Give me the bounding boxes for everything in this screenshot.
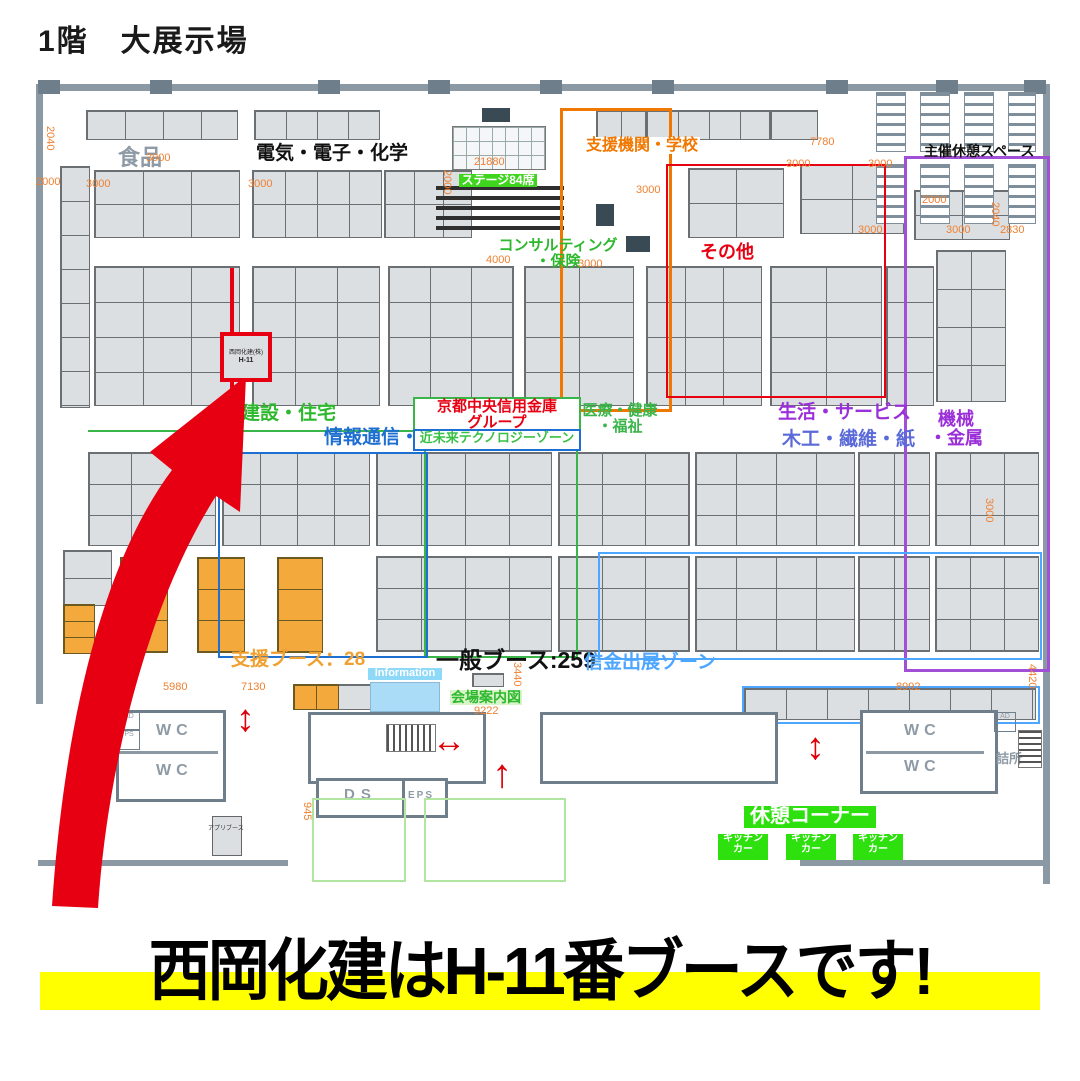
entrance-arrow-icon: ↕ [806, 728, 825, 766]
green-area-outline [312, 798, 406, 882]
zone-label-electric: 電気・電子・化学 [256, 144, 408, 165]
zone-label-rest-space: 主催休憩スペース [924, 144, 1034, 159]
zone-label-chuo-shinkin-group: 京都中央信用金庫 グループ [413, 397, 581, 431]
zone-label-construction: 建設・住宅 [241, 404, 336, 425]
dimension: 3000 [858, 224, 882, 236]
wall-bottom-right [800, 860, 1048, 866]
dimension: 3000 [636, 184, 660, 196]
booth-block [695, 452, 855, 546]
zone-label-future-tech: 近未来テクノロジーゾーン [413, 429, 581, 451]
booth-block [472, 673, 504, 687]
zone-label-machine: 機械 ・金属 [926, 410, 986, 449]
dimension: 2000 [922, 194, 946, 206]
dimension: 3000 [248, 178, 272, 190]
stage-equipment [482, 108, 510, 122]
dimension: 7780 [810, 136, 834, 148]
dimension: 945 [301, 802, 313, 820]
ad-room: AD [994, 712, 1016, 732]
zone-label-support-org: 支援機関・学校 [584, 137, 700, 154]
exhibition-floor-map: 1階 大展示場 [0, 0, 1080, 1081]
dimension: 9222 [474, 705, 498, 717]
kitchen-car-label: キッチン カー [853, 834, 903, 860]
ad-room: AD [118, 712, 140, 730]
zone-outline-others [666, 164, 886, 398]
dimension: 2040 [44, 126, 56, 150]
entrance-arrow-icon: ↔ [432, 724, 466, 758]
zone-label-medical: 医療・健康 ・福祉 [580, 403, 660, 435]
wc-divider-right [866, 751, 984, 754]
booth-block [94, 266, 240, 406]
wc-label: WC [156, 722, 193, 740]
booth-block [254, 110, 380, 140]
booth-block [63, 550, 112, 606]
dimension: 5980 [163, 681, 187, 693]
pillar [318, 80, 340, 94]
wc-divider-left [118, 751, 218, 754]
dimension: 3000 [946, 224, 970, 236]
green-area-outline [424, 798, 566, 882]
pillar [652, 80, 674, 94]
dimension: 3000 [578, 258, 602, 270]
stairs-icon [386, 724, 436, 752]
pillar [38, 80, 60, 94]
booth-block [60, 166, 90, 408]
booth-block [88, 452, 216, 546]
information-label: Information [368, 668, 442, 680]
page-title: 1階 大展示場 [38, 16, 249, 60]
booth-block [86, 110, 238, 140]
highlighted-booth-H-11: 西岡化建(株) H-11 [220, 332, 272, 382]
rest-space-desk [876, 92, 906, 152]
dimension: 2000 [36, 176, 60, 188]
wc-label: WC [156, 762, 193, 780]
app-booth-label: アプリブース [208, 826, 244, 832]
map-sign-label: 会場案内図 [450, 690, 522, 705]
zone-outline-it [218, 452, 428, 658]
pillar [826, 80, 848, 94]
entrance-arrow-icon: ↑ [492, 754, 512, 794]
entrance-arrow-icon: ↕ [236, 700, 255, 738]
dimension: 4420 [1026, 664, 1038, 688]
wc-label: WC [904, 758, 941, 776]
support-booth-block [293, 684, 339, 710]
shinkin-zone-label: 信金出展ゾーン [584, 653, 716, 674]
dimension: 3000 [983, 498, 995, 522]
stairs-icon [1018, 730, 1042, 768]
pillar [150, 80, 172, 94]
kitchen-car-label: キッチン カー [718, 834, 768, 860]
zone-label-others: その他 [700, 243, 754, 262]
zone-label-wood: 木工・繊維・紙 [782, 430, 915, 451]
banner-text: 西岡化建はH-11番ブースです! [30, 916, 1050, 1013]
rest-corner-label: 休憩コーナー [744, 806, 876, 828]
ps-room: PS [118, 730, 140, 750]
zone-label-life-service: 生活・サービス [778, 403, 911, 424]
booth-block [388, 266, 514, 406]
zone-label-stage: ステージ84席 [459, 174, 537, 187]
booth-block [94, 170, 240, 238]
dimension: 21880 [474, 156, 505, 168]
dimension: 2000 [441, 170, 453, 194]
support-booth-block [120, 557, 168, 653]
dimension: 7130 [241, 681, 265, 693]
dimension: 8992 [896, 681, 920, 693]
kitchen-car-label: キッチン カー [786, 834, 836, 860]
dimension: 4000 [486, 254, 510, 266]
pillar [540, 80, 562, 94]
wall-bottom-left [38, 860, 288, 866]
support-booth-block [63, 604, 95, 654]
highlighted-booth-company: 西岡化建(株) [229, 350, 263, 357]
dimension: 3440 [511, 662, 523, 686]
pillar [428, 80, 450, 94]
highlighted-booth-number: H-11 [239, 357, 254, 364]
support-booth-count: 支援ブース：28 [231, 650, 365, 671]
stage-seat-rows [436, 186, 564, 234]
information-counter [370, 682, 440, 712]
dimension: 3000 [868, 158, 892, 170]
center-room [540, 712, 778, 784]
zone-outline-shinkin-group [424, 446, 578, 658]
dimension: 3000 [786, 158, 810, 170]
app-booth [212, 816, 242, 856]
dimension: 3000 [86, 178, 110, 190]
dimension: 2040 [989, 202, 1001, 226]
wc-label: WC [904, 722, 941, 740]
dimension: 2830 [1000, 224, 1024, 236]
dimension: 3000 [146, 152, 170, 164]
zone-outline-shinkin [598, 552, 1042, 660]
